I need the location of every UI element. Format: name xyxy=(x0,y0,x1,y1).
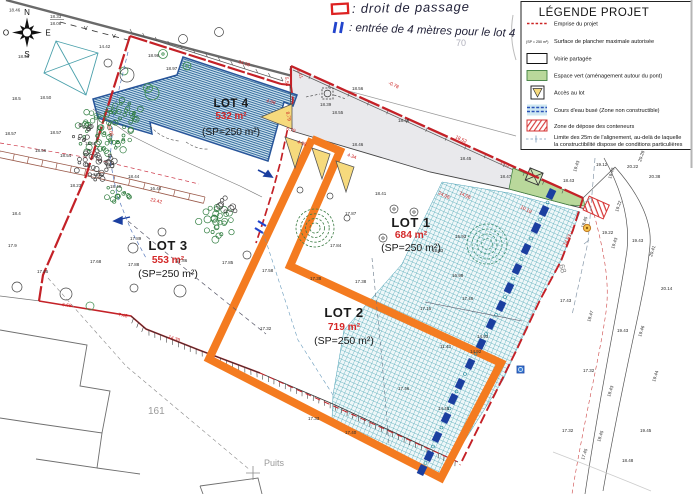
svg-text:18.57: 18.57 xyxy=(50,130,62,135)
svg-text:17.33: 17.33 xyxy=(308,416,320,421)
svg-text:20.14: 20.14 xyxy=(661,286,673,291)
svg-text:Cours d'eau busé (Zone non con: Cours d'eau busé (Zone non constructible… xyxy=(554,108,660,114)
svg-text:18.53: 18.53 xyxy=(18,54,30,59)
svg-text:Espace vert (aménagement autou: Espace vert (aménagement autour du pont) xyxy=(554,73,662,79)
svg-text:17.85: 17.85 xyxy=(222,260,234,265)
svg-text:LOT 2: LOT 2 xyxy=(324,305,363,320)
svg-text:18.47: 18.47 xyxy=(500,174,512,179)
svg-text:O: O xyxy=(3,29,9,38)
svg-text:17.68: 17.68 xyxy=(90,259,102,264)
svg-text:Surface de plancher maximale a: Surface de plancher maximale autorisée xyxy=(554,39,654,45)
svg-text:18.5: 18.5 xyxy=(12,96,21,101)
svg-text:17.15: 17.15 xyxy=(420,306,432,311)
svg-text:Accès au lot: Accès au lot xyxy=(554,90,585,96)
svg-text:16.44: 16.44 xyxy=(150,186,162,191)
svg-text:LÉGENDE PROJET: LÉGENDE PROJET xyxy=(539,6,650,19)
svg-text:719 m²: 719 m² xyxy=(328,322,361,333)
svg-text:18.23: 18.23 xyxy=(70,183,82,188)
svg-text:70: 70 xyxy=(456,38,466,48)
svg-text:15.03: 15.03 xyxy=(432,248,444,253)
svg-text:17.46: 17.46 xyxy=(462,296,474,301)
svg-text:18.46: 18.46 xyxy=(9,8,21,13)
svg-text:19.43: 19.43 xyxy=(632,238,644,243)
svg-text:16.98: 16.98 xyxy=(452,273,464,278)
svg-text:14.92: 14.92 xyxy=(470,349,482,354)
svg-text:18.56: 18.56 xyxy=(35,148,47,153)
svg-text:18.57: 18.57 xyxy=(5,131,17,136)
svg-text:17.84: 17.84 xyxy=(330,243,342,248)
svg-text:18.50: 18.50 xyxy=(40,95,52,100)
svg-text:18.08: 18.08 xyxy=(50,21,62,26)
svg-text:V: V xyxy=(84,26,88,32)
svg-text:18.58: 18.58 xyxy=(85,141,97,146)
svg-text:18.56: 18.56 xyxy=(352,86,364,91)
svg-text:18.97: 18.97 xyxy=(166,66,178,71)
svg-text:11.43: 11.43 xyxy=(440,344,451,349)
svg-text:15.93: 15.93 xyxy=(455,234,467,239)
svg-text:17.32: 17.32 xyxy=(260,326,272,331)
svg-text:17.58: 17.58 xyxy=(262,268,274,273)
svg-text:Voirie partagée: Voirie partagée xyxy=(554,56,592,62)
svg-text:(SP=250 m²): (SP=250 m²) xyxy=(314,335,374,347)
svg-text:N: N xyxy=(24,8,30,17)
svg-text:Puits: Puits xyxy=(264,458,285,468)
svg-text:(SP=250 m²): (SP=250 m²) xyxy=(202,127,260,138)
svg-text:E: E xyxy=(45,29,50,38)
svg-text:18.4: 18.4 xyxy=(12,211,21,216)
svg-text:18.46: 18.46 xyxy=(110,184,122,189)
svg-text:(SP=250 m²): (SP=250 m²) xyxy=(138,268,198,280)
svg-text:Emprise du projet: Emprise du projet xyxy=(554,21,598,27)
svg-text:18.48: 18.48 xyxy=(398,118,410,123)
svg-text:18.33: 18.33 xyxy=(50,14,62,19)
svg-text:19.45: 19.45 xyxy=(640,428,652,433)
svg-text:18.48: 18.48 xyxy=(622,458,634,463)
svg-text:Limite des 25m de l'alignement: Limite des 25m de l'alignement, au-delà … xyxy=(554,135,681,141)
svg-text:20.22: 20.22 xyxy=(627,164,639,169)
svg-text:20.38: 20.38 xyxy=(649,174,661,179)
svg-text:18.46: 18.46 xyxy=(352,142,364,147)
svg-text:17.9: 17.9 xyxy=(8,243,17,248)
svg-text:14.93: 14.93 xyxy=(477,334,489,339)
svg-text:14.45: 14.45 xyxy=(438,406,450,411)
svg-text:17.89: 17.89 xyxy=(130,236,142,241)
svg-text:5.56: 5.56 xyxy=(283,77,290,87)
svg-text:V: V xyxy=(112,34,116,40)
svg-text:18.55: 18.55 xyxy=(332,110,344,115)
svg-text:17.87: 17.87 xyxy=(345,211,357,216)
svg-text:LOT 3: LOT 3 xyxy=(148,238,187,253)
svg-text:17.38: 17.38 xyxy=(355,279,367,284)
svg-text:LOT 4: LOT 4 xyxy=(213,98,248,110)
svg-text:LOT 1: LOT 1 xyxy=(391,215,430,230)
svg-text:18.41: 18.41 xyxy=(375,191,387,196)
svg-text:17.88: 17.88 xyxy=(128,262,140,267)
svg-text:18.98: 18.98 xyxy=(148,53,160,58)
svg-text:17.32: 17.32 xyxy=(562,428,574,433)
svg-text:17.65: 17.65 xyxy=(37,269,49,274)
svg-text:17.32: 17.32 xyxy=(583,368,595,373)
svg-text:684 m²: 684 m² xyxy=(395,230,428,241)
svg-text:18.44: 18.44 xyxy=(128,174,140,179)
svg-text:18.39: 18.39 xyxy=(320,102,332,107)
svg-text:18.43: 18.43 xyxy=(563,178,575,183)
svg-text:17.46: 17.46 xyxy=(398,386,410,391)
svg-text:18.22: 18.22 xyxy=(93,172,105,177)
svg-text:(SP = 250 m²): (SP = 250 m²) xyxy=(526,40,548,44)
svg-text:18.54: 18.54 xyxy=(60,153,72,158)
svg-text:: droit de passage: : droit de passage xyxy=(352,0,470,16)
svg-text:17.38: 17.38 xyxy=(310,276,322,281)
svg-text:17.40: 17.40 xyxy=(345,430,357,435)
svg-text:19.12: 19.12 xyxy=(596,162,608,167)
svg-text:19.22: 19.22 xyxy=(602,230,614,235)
svg-text:14.42: 14.42 xyxy=(99,44,111,49)
svg-text:161: 161 xyxy=(148,406,165,417)
svg-text:18.45: 18.45 xyxy=(460,156,472,161)
svg-text:532 m²: 532 m² xyxy=(215,111,247,122)
svg-text:19.43: 19.43 xyxy=(617,328,629,333)
svg-text:17.86: 17.86 xyxy=(176,258,188,263)
svg-text:Zone de dépose des conteneurs: Zone de dépose des conteneurs xyxy=(554,124,634,130)
svg-text:la constructibilité dispose de: la constructibilité dispose de condition… xyxy=(554,142,683,148)
svg-text:17.43: 17.43 xyxy=(560,298,572,303)
